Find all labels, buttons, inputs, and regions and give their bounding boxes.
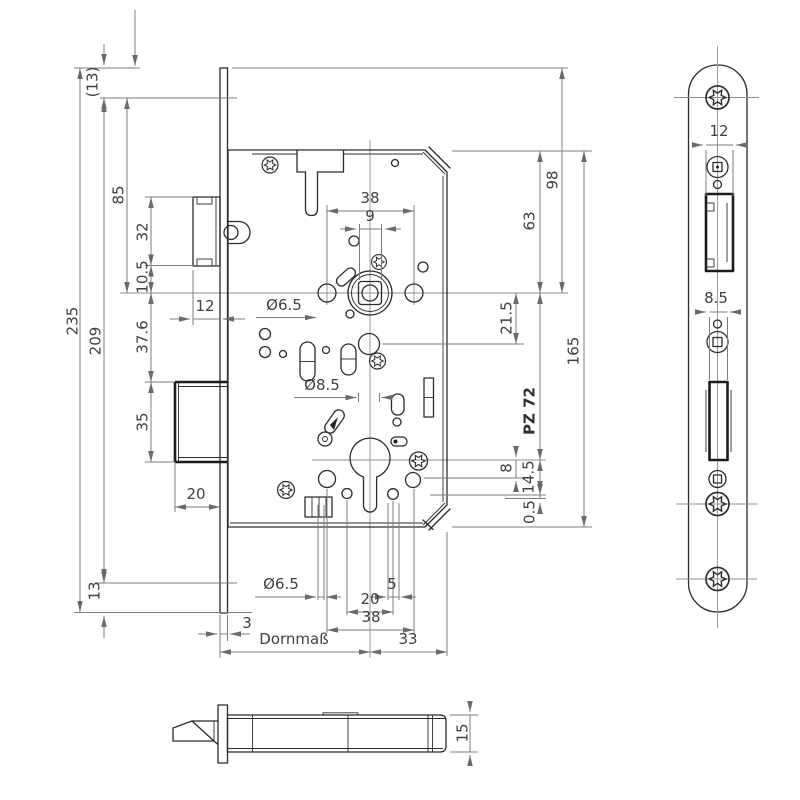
torx-screw-icon — [410, 452, 428, 470]
dim-faceplate-thickness: 3 — [242, 614, 252, 632]
dim-latch-protrusion: 12 — [195, 297, 214, 315]
dim-deadbolt-height: 35 — [133, 412, 151, 431]
dim-axis-to-case-back: 33 — [398, 630, 417, 648]
dim-deadbolt-cutout-width: 8.5 — [704, 289, 728, 307]
dim-plate-top-to-spindle: 98 — [543, 170, 561, 189]
dim-latch-height: 32 — [133, 222, 151, 241]
dim-spindle-to-deadbolt: 37.6 — [133, 320, 151, 353]
latch-profile — [173, 721, 218, 745]
dim-case-height: 165 — [564, 337, 582, 366]
dim-bottom-hole-dia: Ø6.5 — [263, 575, 299, 593]
dim-follower-square: 9 — [365, 207, 375, 225]
dim-screw-hole-spacing: 38 — [361, 608, 380, 626]
technical-drawing-mortise-lock: 235 (13) 209 13 85 32 10.5 37.6 35 20 12… — [0, 0, 800, 800]
torx-screw-icon — [369, 353, 385, 369]
latch-tail — [228, 222, 251, 244]
centerlines — [120, 140, 568, 658]
dimensions-left: 235 (13) 209 13 85 32 10.5 37.6 35 20 12… — [63, 10, 252, 658]
case-profile — [228, 713, 447, 752]
faceplate-view: 12 8.5 — [674, 46, 759, 628]
bottom-view: 15 — [173, 701, 478, 766]
dim-bottom-screw-offset: 13 — [85, 581, 103, 600]
torx-screw-icon — [262, 157, 278, 173]
change-lever — [318, 408, 346, 446]
dim-deadbolt-width: 20 — [186, 485, 205, 503]
faceplate-edge — [218, 705, 228, 763]
t-slot — [297, 150, 344, 216]
deadbolt-cutout — [706, 382, 731, 460]
dim-screw-to-spindle: 85 — [109, 185, 127, 204]
dim-hub-hole-dia: Ø6.5 — [266, 296, 302, 314]
dim-case-top-to-spindle: 63 — [520, 211, 538, 230]
torx-screw-icon — [372, 255, 387, 270]
dim-spindle-to-hole: 21.5 — [497, 301, 515, 334]
dim-backset-label: Dornmaß — [259, 630, 328, 648]
dim-hub-hole-spacing: 38 — [360, 189, 379, 207]
dim-spindle-hole-dia: Ø8.5 — [304, 376, 340, 394]
drawing-canvas: 235 (13) 209 13 85 32 10.5 37.6 35 20 12… — [0, 0, 800, 800]
dim-top-screw-offset: (13) — [83, 67, 101, 98]
dim-cyl-axis-to-lower-hole: 14.5 — [519, 460, 537, 493]
latch-cutout — [706, 194, 733, 271]
dim-case-thickness: 15 — [453, 723, 471, 742]
dim-screw-spacing: 209 — [86, 327, 104, 356]
spindle-hole — [359, 334, 380, 355]
faceplate-strip — [220, 68, 228, 613]
dimensions-bottom: Ø6.5 5 20 38 Dornmaß 33 — [220, 489, 447, 656]
main-view: 235 (13) 209 13 85 32 10.5 37.6 35 20 12… — [63, 10, 592, 658]
torx-screw-icon — [278, 482, 295, 499]
dim-hole-offset: 5 — [387, 575, 397, 593]
dim-hole-pair-spacing: 20 — [360, 590, 379, 608]
dim-clearance: 0.5 — [520, 500, 538, 524]
dim-centre-distance: PZ 72 — [520, 387, 538, 435]
latch-bolt — [193, 197, 250, 266]
dim-latch-to-spindle: 10.5 — [133, 260, 151, 293]
dim-latch-cutout-width: 12 — [709, 122, 728, 140]
dim-overall-length: 235 — [63, 307, 81, 336]
dim-cyl-axis-to-hole: 8 — [497, 463, 515, 473]
